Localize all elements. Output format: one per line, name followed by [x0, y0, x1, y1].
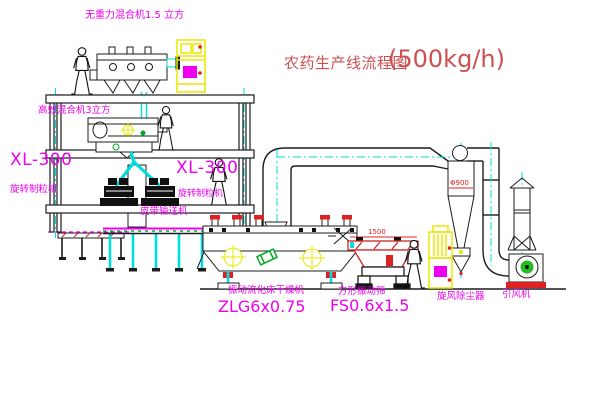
label-granulator-left-name: 旋转制粒机	[10, 185, 58, 195]
control-cabinet-2	[429, 226, 452, 288]
granulator-right-machine	[141, 178, 179, 206]
drawing-title-capacity: (500kg/h)	[388, 45, 505, 73]
dimension-cyclone-diameter: Φ900	[450, 179, 469, 187]
label-belt-conveyor: 皮带输送机	[140, 207, 188, 217]
induced-draft-fan	[506, 254, 546, 288]
support-table	[48, 232, 130, 260]
gravity-free-mixer	[90, 47, 180, 93]
label-dryer-name: 振动流化床干燥机	[228, 286, 304, 296]
label-granulator-mid-name: 旋转制粒机	[178, 190, 223, 199]
label-dryer-model: ZLG6x0.75	[218, 299, 306, 315]
cad-drawing-canvas: 无重力混合机1.5 立方 农药生产线流程图 (500kg/h) 高效混合机3立方…	[0, 0, 600, 403]
control-cabinet-1	[177, 40, 205, 92]
dimension-sieve-width: 1500	[368, 228, 386, 236]
label-fan: 引风机	[502, 290, 531, 300]
person-top-floor	[71, 48, 92, 94]
fluid-bed-dryer	[197, 215, 357, 289]
label-cyclone: 旋风除尘器	[437, 292, 485, 302]
label-granulator-left-model: XL-300	[10, 152, 72, 169]
label-gravity-mixer: 无重力混合机1.5 立方	[85, 11, 184, 21]
label-granulator-mid-model: XL-300	[176, 160, 238, 177]
label-high-mixer: 高效混合机3立方	[38, 106, 111, 116]
label-sieve-model: FS0.6x1.5	[330, 298, 409, 314]
